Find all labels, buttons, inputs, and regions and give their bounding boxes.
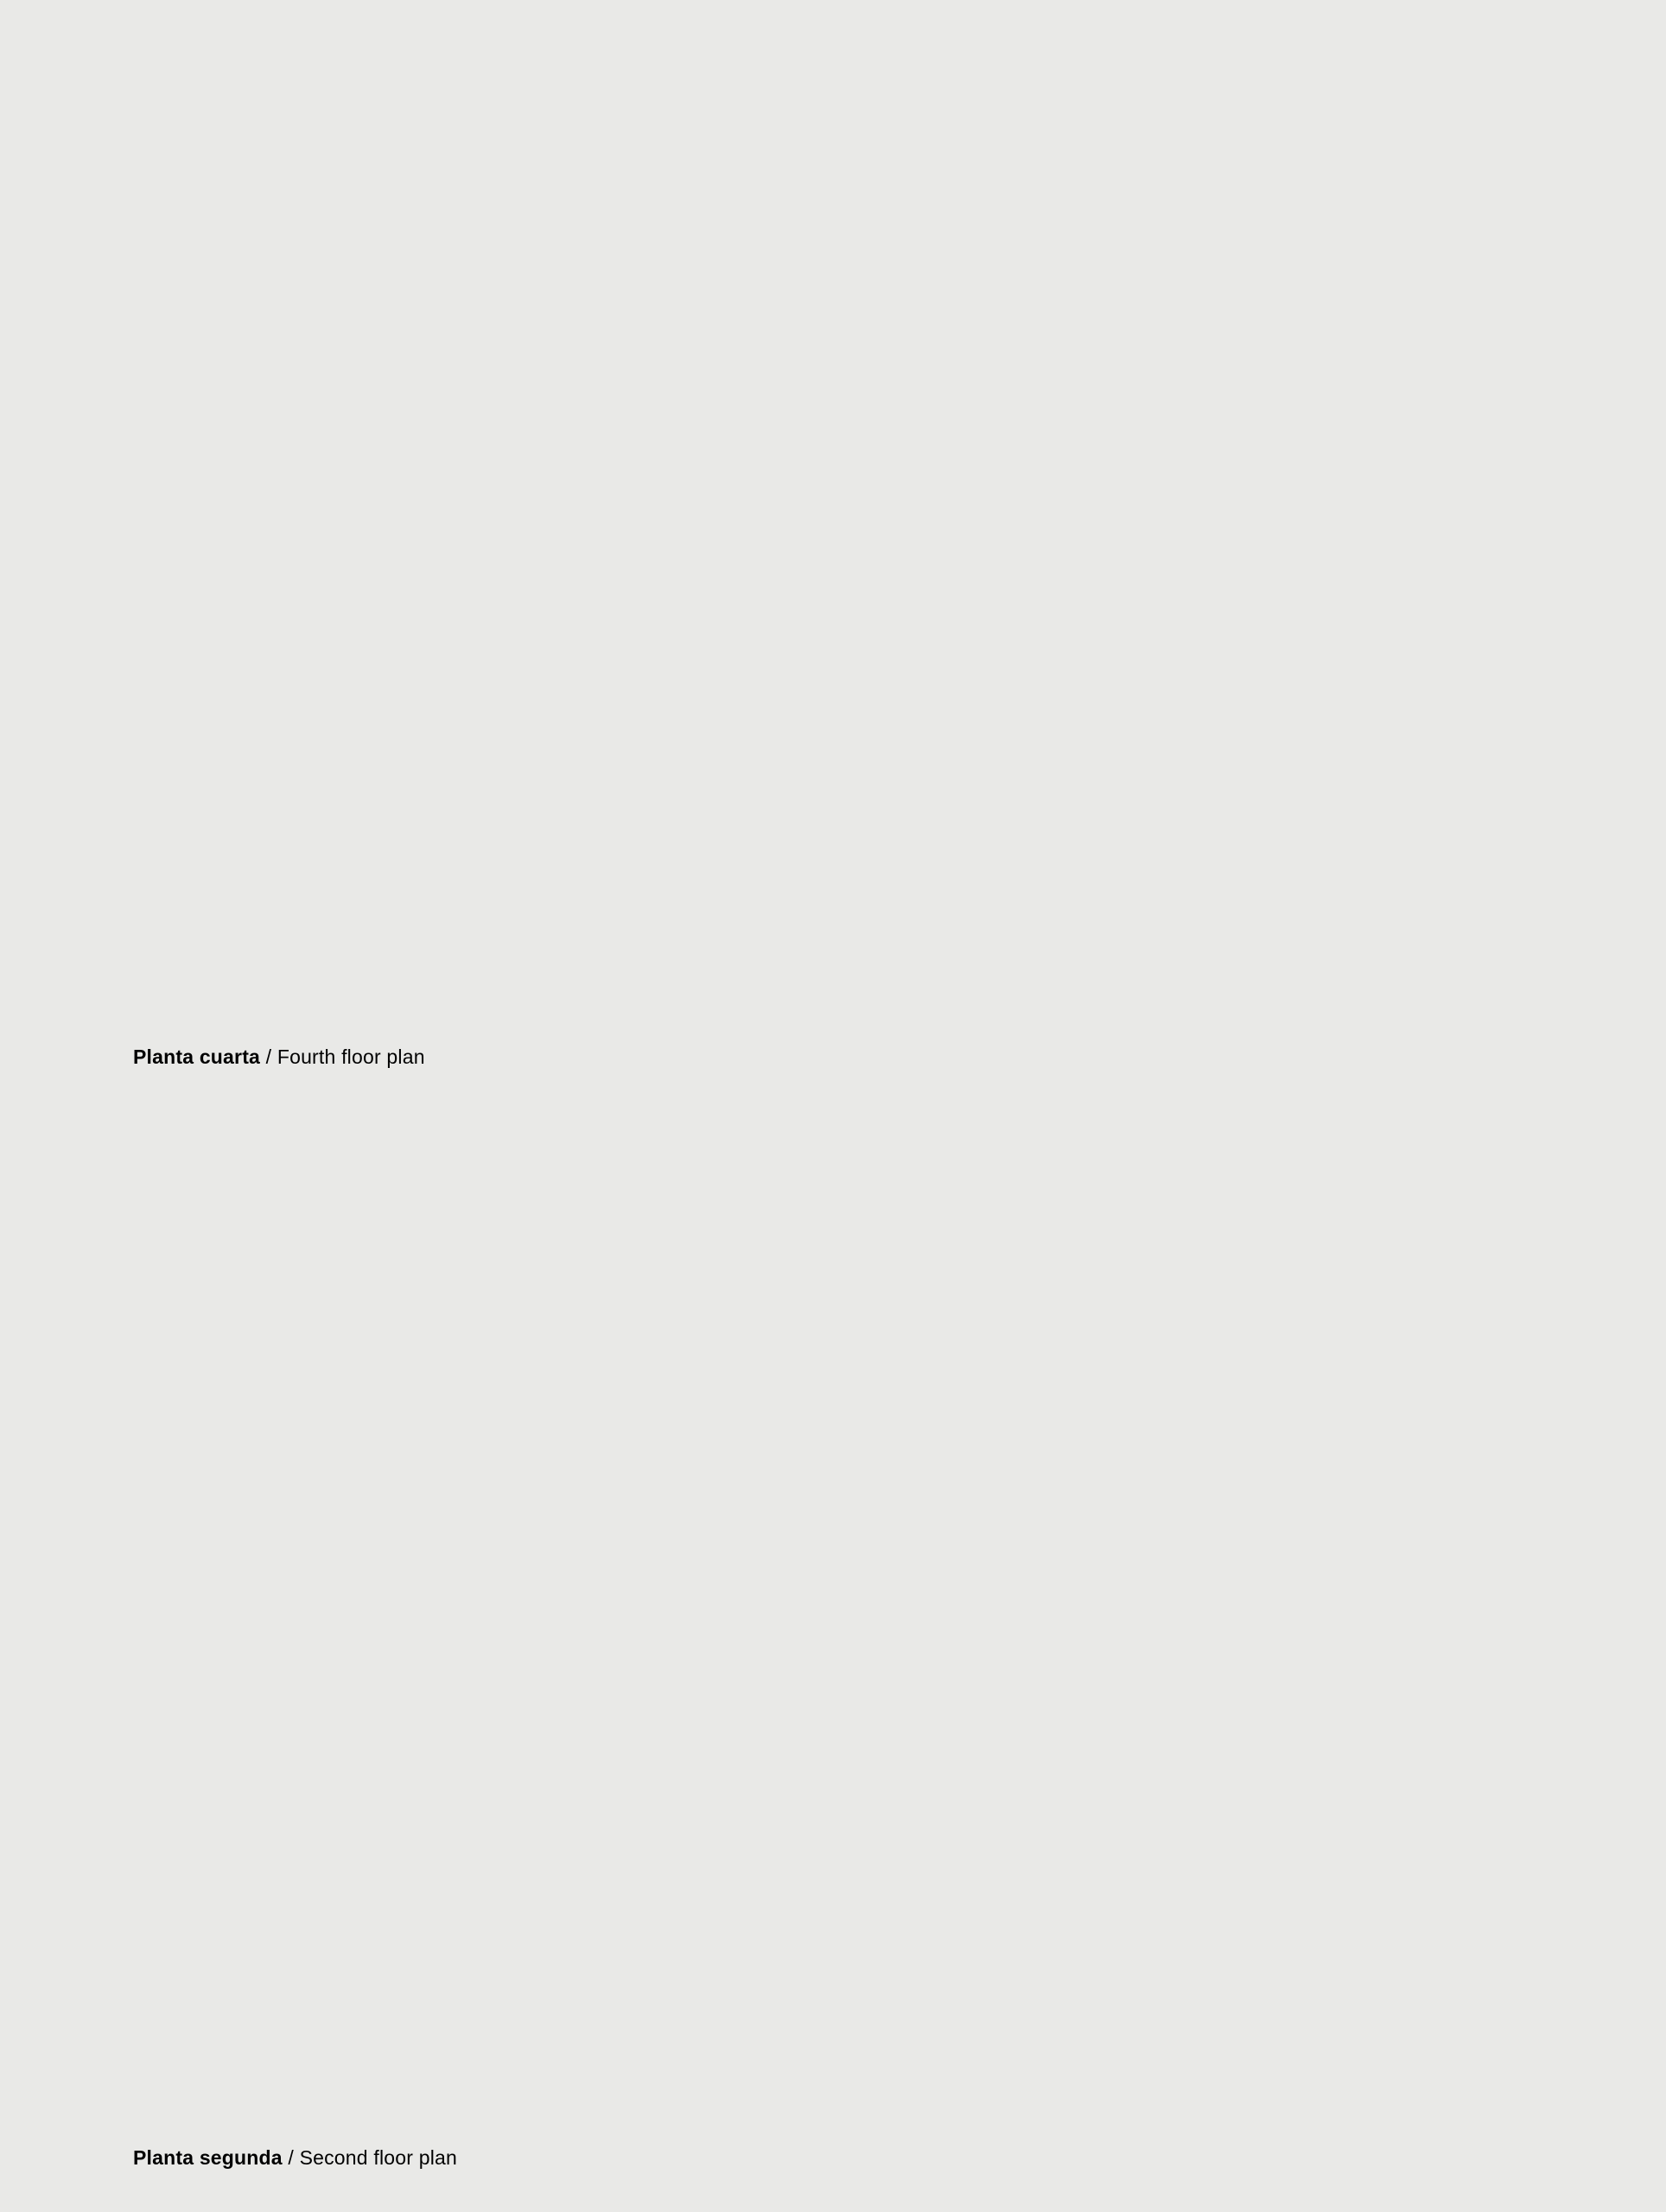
caption-separator: / bbox=[260, 1046, 277, 1068]
fourth-floor-caption: Planta cuarta / Fourth floor plan bbox=[133, 1046, 425, 1069]
second-floor-caption: Planta segunda / Second floor plan bbox=[133, 2146, 457, 2170]
floor-plans-drawing bbox=[0, 0, 1666, 2212]
caption-separator: / bbox=[283, 2146, 300, 2169]
caption-title-en: Fourth floor plan bbox=[277, 1046, 425, 1068]
caption-title-en: Second floor plan bbox=[300, 2146, 457, 2169]
drawing-sheet: Planta cuarta / Fourth floor plan Planta… bbox=[0, 0, 1666, 2212]
caption-title-es: Planta cuarta bbox=[133, 1046, 260, 1068]
caption-title-es: Planta segunda bbox=[133, 2146, 283, 2169]
